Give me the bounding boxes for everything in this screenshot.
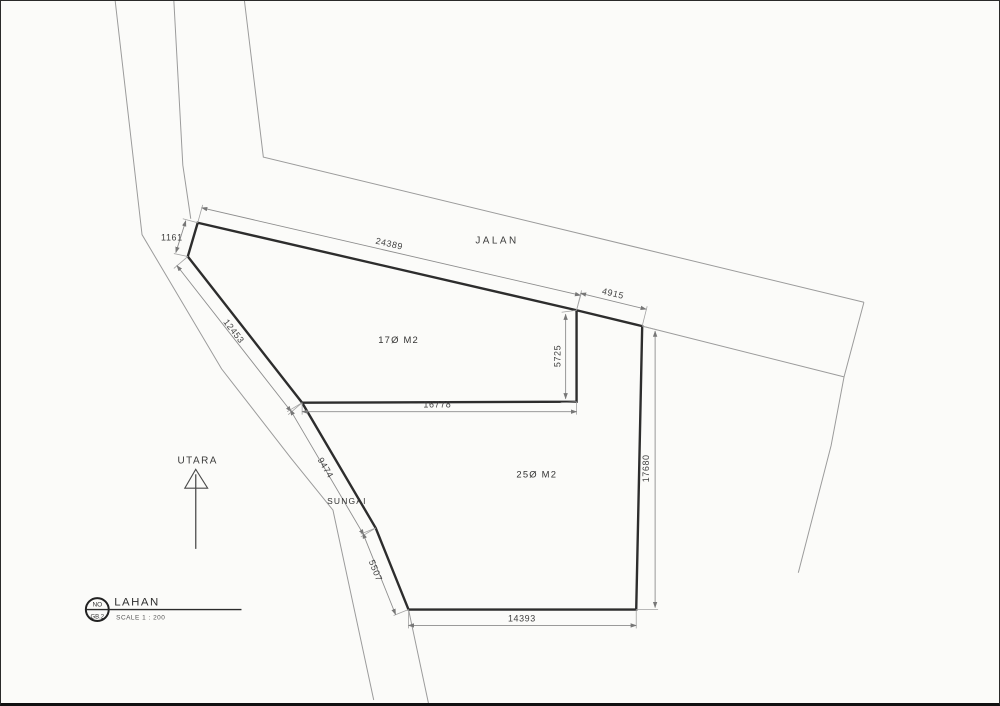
title-bubble-top-text: NO <box>92 602 102 609</box>
drawing-title: LAHAN <box>114 597 160 609</box>
boundary-south-extension-line <box>409 610 429 703</box>
site-plan-canvas: 24389 4915 1161 12453 9474 5507 16778 <box>1 1 999 703</box>
dimension-value-road-frontage-2: 4915 <box>601 286 625 301</box>
extension-line <box>288 403 302 415</box>
extension-line <box>562 310 577 312</box>
extension-line <box>174 257 188 269</box>
north-label: UTARA <box>178 455 218 466</box>
dimension-value-divider-v: 5725 <box>553 345 563 367</box>
drawing-sheet: 24389 4915 1161 12453 9474 5507 16778 <box>0 0 1000 706</box>
river-east-bank-upper-line <box>174 1 191 219</box>
parcel1-area-label: 17Ø M2 <box>378 335 419 346</box>
extension-line <box>361 528 376 537</box>
dimension-value-river-lower: 5507 <box>367 558 385 582</box>
north-arrow: UTARA <box>178 455 218 549</box>
road-south-edge-extension-line <box>642 326 844 377</box>
drawing-scale: SCALE 1 : 200 <box>116 614 165 621</box>
extension-line <box>174 254 188 257</box>
dimension-value-nw-kink: 1161 <box>161 233 183 243</box>
neighbor-east-boundary-line <box>798 302 864 572</box>
context-lines <box>115 1 864 703</box>
dimensions: 24389 4915 1161 12453 9474 5507 16778 <box>161 205 658 629</box>
dimension-value-river-mid: 9474 <box>316 456 336 480</box>
extension-line <box>394 610 409 616</box>
land-parcel-boundary <box>188 223 642 610</box>
road-north-edge-line <box>244 1 863 302</box>
dimension-value-west-upper: 12453 <box>221 317 246 345</box>
river-west-bank-line <box>115 1 374 700</box>
feature-labels: JALAN SUNGAI 17Ø M2 25Ø M2 <box>327 236 557 507</box>
title-bubble-bottom-text: GB.2 <box>91 614 105 620</box>
dimension-value-divider-h: 16778 <box>423 400 451 410</box>
road-label: JALAN <box>475 236 518 247</box>
extension-line <box>287 403 302 412</box>
title-block: NO GB.2 LAHAN SCALE 1 : 200 <box>86 597 242 622</box>
extension-line <box>642 326 658 330</box>
dimension-value-road-frontage: 24389 <box>375 236 404 252</box>
parcel-divider-line <box>302 310 576 402</box>
river-label: SUNGAI <box>327 496 367 506</box>
dimension-line-road-frontage <box>202 208 581 296</box>
parcel-outline <box>188 223 642 610</box>
parcel2-area-label: 25Ø M2 <box>516 469 557 480</box>
dimension-value-east-side: 17680 <box>641 454 651 482</box>
dimension-value-south-side: 14393 <box>508 613 536 623</box>
